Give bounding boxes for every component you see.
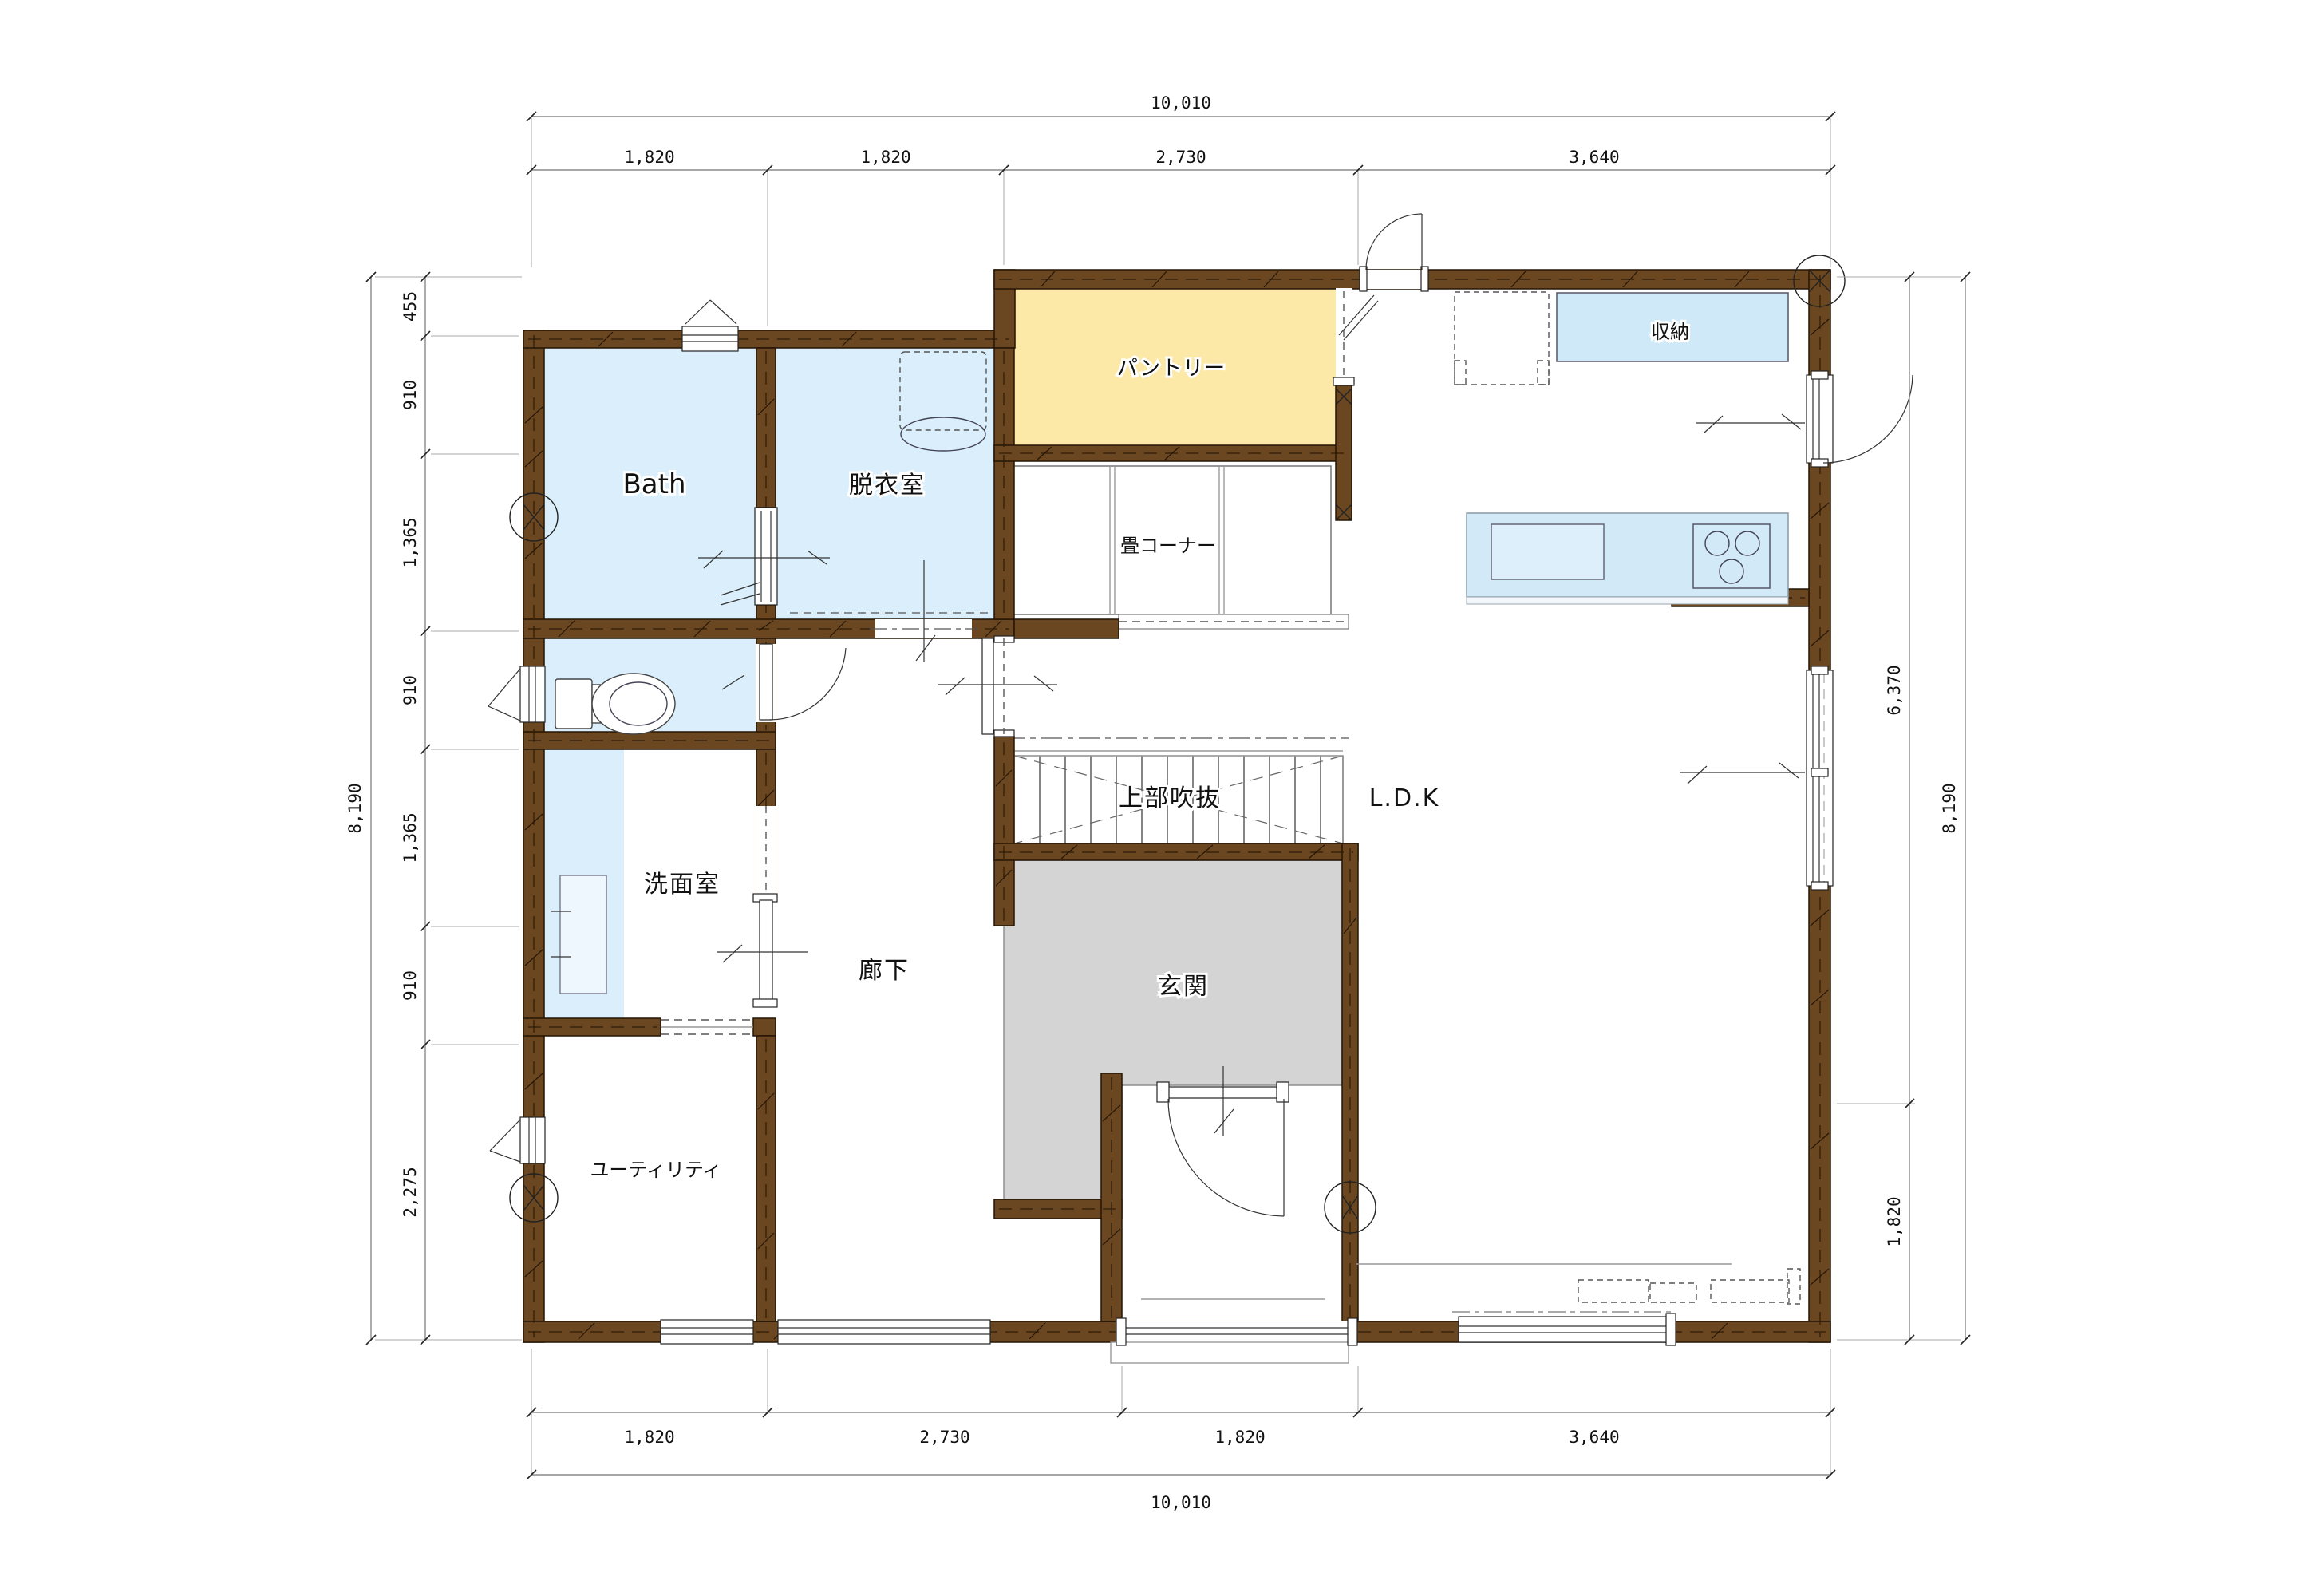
dim-left-seg-3: 910 — [401, 675, 420, 705]
dim-left-seg-5: 910 — [401, 970, 420, 1001]
pantry-label: パントリー — [1117, 357, 1226, 381]
dressing-room-label: 脱衣室 — [849, 472, 926, 500]
refrigerator-space — [1455, 292, 1549, 385]
toilet-window — [488, 666, 545, 722]
dim-bottom-total: 10,010 — [1151, 1493, 1211, 1512]
washroom-sliding-door — [717, 806, 808, 1007]
floor-plan-drawing: Bath 脱衣室 パントリー 畳コーナー 収納 L.D.K 上部吹抜 玄関 廊下… — [0, 0, 2314, 1596]
washroom-label: 洗面室 — [644, 871, 721, 899]
dim-right-seg-1: 1,820 — [1885, 1196, 1904, 1246]
bath-label: Bath — [622, 468, 685, 500]
corridor-south-window — [778, 1320, 990, 1344]
ldk-label: L.D.K — [1369, 784, 1440, 812]
dim-bottom-seg-3: 3,640 — [1569, 1428, 1619, 1447]
kitchen-counter — [1467, 513, 1788, 604]
ldk-south-furniture — [1356, 1264, 1800, 1304]
dim-bottom-seg-0: 1,820 — [624, 1428, 674, 1447]
dim-left-seg-4: 1,365 — [401, 812, 420, 863]
dim-right-seg-0: 6,370 — [1885, 665, 1904, 715]
toilet-fixture — [555, 674, 675, 734]
ldk-east-window — [1680, 666, 1833, 890]
hall-sliding-door — [938, 636, 1057, 737]
dim-top-seg-2: 2,730 — [1155, 148, 1206, 167]
entrance-door — [1157, 1066, 1289, 1216]
ldk-south-window — [1452, 1312, 1676, 1345]
back-door — [1360, 214, 1428, 291]
dim-left-total: 8,190 — [346, 783, 365, 833]
storage-label: 収納 — [1651, 321, 1689, 343]
dim-top-seg-1: 1,820 — [860, 148, 910, 167]
entrance-hall-fill — [1004, 860, 1342, 1199]
cooktop — [1693, 524, 1770, 588]
dim-left-seg-1: 910 — [401, 380, 420, 410]
porch-slab — [1111, 1342, 1349, 1363]
pantry-sliding-door — [1333, 288, 1378, 385]
dim-bottom-seg-2: 1,820 — [1214, 1428, 1265, 1447]
dim-top-total: 10,010 — [1151, 93, 1211, 113]
entrance-label: 玄関 — [1158, 973, 1209, 1001]
upper-void-label: 上部吹抜 — [1119, 784, 1221, 812]
corridor-label: 廊下 — [859, 957, 910, 985]
tatami-corner-label: 畳コーナー — [1120, 535, 1216, 557]
dim-left-seg-0: 455 — [401, 291, 420, 322]
dim-bottom-seg-1: 2,730 — [919, 1428, 969, 1447]
dim-left-seg-2: 1,365 — [401, 517, 420, 567]
dim-top-seg-3: 3,640 — [1569, 148, 1619, 167]
utility-window — [490, 1117, 545, 1163]
dim-left-seg-6: 2,275 — [401, 1167, 420, 1217]
dim-right-total: 8,190 — [1940, 783, 1959, 833]
bath-window — [682, 300, 738, 351]
entrance-porch — [1111, 1299, 1357, 1363]
floor-plan-page: Bath 脱衣室 パントリー 畳コーナー 収納 L.D.K 上部吹抜 玄関 廊下… — [0, 0, 2314, 1596]
utility-south-window — [661, 1320, 753, 1344]
utility-label: ユーティリティ — [590, 1159, 721, 1181]
utility-opening — [661, 1020, 753, 1034]
dim-top-seg-0: 1,820 — [624, 148, 674, 167]
kitchen-sink — [1491, 524, 1604, 579]
ldk-east-door — [1696, 371, 1913, 467]
